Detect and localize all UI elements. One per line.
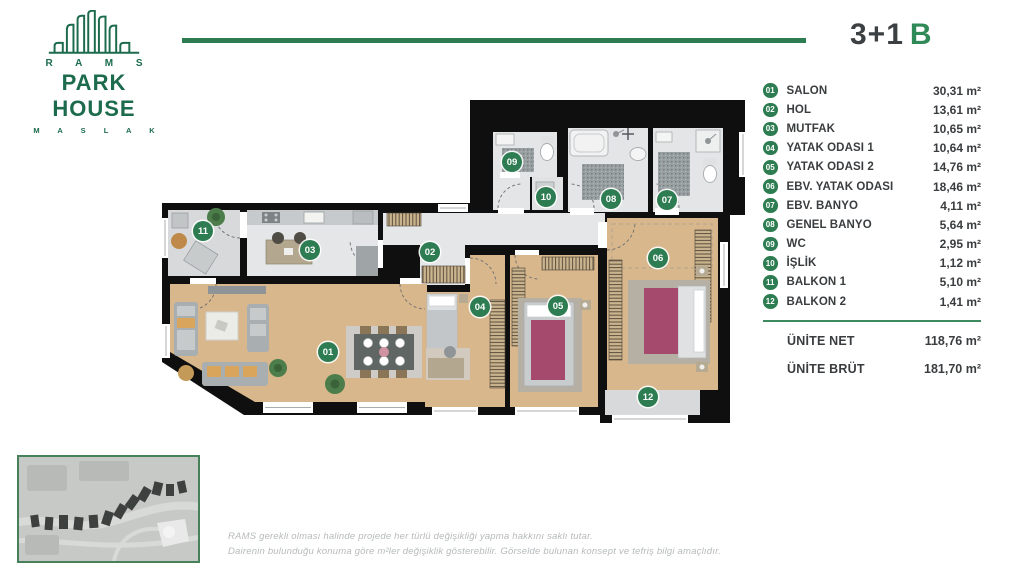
plan-badge-hol: 02 bbox=[420, 242, 440, 262]
dining-chair bbox=[360, 370, 371, 378]
room-area: 18,46 m² bbox=[933, 180, 981, 194]
room-label: MUTFAK bbox=[787, 123, 924, 135]
kitchen-sink bbox=[304, 212, 324, 223]
logo-brand-text: R A M S bbox=[18, 58, 170, 69]
balcony-table bbox=[171, 233, 187, 249]
room-number-badge: 10 bbox=[763, 256, 778, 271]
bed-blanket bbox=[644, 288, 678, 354]
tv-console bbox=[208, 286, 266, 294]
wc-sink bbox=[496, 134, 514, 145]
disclaimer-line2: Dairenin bulunduğu konuma göre m²ler değ… bbox=[228, 544, 721, 559]
toilet bbox=[704, 166, 717, 183]
bed-blanket bbox=[531, 320, 565, 380]
room-label: BALKON 2 bbox=[787, 296, 931, 308]
site-map bbox=[17, 455, 200, 563]
total-net-area: 118,76 m² bbox=[925, 334, 981, 348]
room-area: 30,31 m² bbox=[933, 84, 981, 98]
room-number-badge: 11 bbox=[763, 275, 778, 290]
kitchen-cabinet bbox=[356, 246, 378, 276]
room-label: GENEL BANYO bbox=[787, 219, 931, 231]
master-bedroom-furniture bbox=[628, 266, 710, 372]
room-label: WC bbox=[787, 238, 931, 250]
room-label: İŞLİK bbox=[787, 257, 931, 269]
room-area: 1,12 m² bbox=[940, 256, 981, 270]
room-area: 5,64 m² bbox=[940, 218, 981, 232]
kitchen-chair bbox=[272, 232, 284, 244]
room-legend: 01SALON30,31 m² 02HOL13,61 m² 03MUTFAK10… bbox=[763, 81, 981, 383]
total-gross-row: ÜNİTE BRÜT181,70 m² bbox=[763, 355, 981, 383]
site-map-image bbox=[19, 457, 198, 561]
plan-badge-yatak2: 05 bbox=[548, 296, 568, 316]
logo-location-text: M A S L A K bbox=[18, 126, 170, 135]
room-number-badge: 07 bbox=[763, 198, 778, 213]
desk bbox=[428, 358, 464, 378]
room-area: 14,76 m² bbox=[933, 160, 981, 174]
total-gross-label: ÜNİTE BRÜT bbox=[787, 362, 924, 376]
fridge bbox=[353, 211, 373, 224]
dining-chair bbox=[396, 370, 407, 378]
plan-badge-ebv-banyo: 07 bbox=[657, 190, 677, 210]
nightstand bbox=[459, 294, 468, 303]
room-number-badge: 06 bbox=[763, 179, 778, 194]
legend-row: 09WC2,95 m² bbox=[763, 235, 981, 254]
bathroom-rug bbox=[658, 152, 690, 196]
side-table bbox=[178, 365, 194, 381]
room-number-badge: 01 bbox=[763, 83, 778, 98]
plan-badge-balkon1: 11 bbox=[193, 221, 213, 241]
brochure-page: R A M S PARK HOUSE M A S L A K 3+1B 01SA… bbox=[0, 0, 1024, 576]
plan-badge-salon: 01 bbox=[318, 342, 338, 362]
plan-title-variant: B bbox=[910, 18, 933, 51]
dining-chair bbox=[378, 370, 389, 378]
legend-row: 01SALON30,31 m² bbox=[763, 81, 981, 100]
dining-chair bbox=[378, 326, 389, 334]
room-label: SALON bbox=[787, 85, 924, 97]
plan-badge-mutfak: 03 bbox=[300, 240, 320, 260]
total-gross-area: 181,70 m² bbox=[924, 362, 981, 376]
legend-row: 03MUTFAK10,65 m² bbox=[763, 119, 981, 138]
legend-row: 12BALKON 21,41 m² bbox=[763, 292, 981, 311]
room-number-badge: 08 bbox=[763, 218, 778, 233]
toilet bbox=[541, 144, 554, 161]
room-area: 10,64 m² bbox=[933, 141, 981, 155]
room-label: EBV. BANYO bbox=[787, 200, 932, 212]
legend-row: 11BALKON 15,10 m² bbox=[763, 273, 981, 292]
plan-title-type: 3+1 bbox=[850, 18, 904, 51]
room-area: 4,11 m² bbox=[940, 199, 981, 213]
plan-badge-genel-banyo: 08 bbox=[601, 189, 621, 209]
plan-badge-wc: 09 bbox=[502, 152, 522, 172]
room-area: 5,10 m² bbox=[940, 275, 981, 289]
room-number-badge: 02 bbox=[763, 103, 778, 118]
legend-row: 10İŞLİK1,12 m² bbox=[763, 254, 981, 273]
floor-plan: 01 02 03 04 05 06 07 08 09 10 11 12 bbox=[150, 100, 745, 432]
bathroom-sink bbox=[656, 132, 672, 142]
legend-row: 06EBV. YATAK ODASI18,46 m² bbox=[763, 177, 981, 196]
legend-row: 05YATAK ODASI 214,76 m² bbox=[763, 158, 981, 177]
disclaimer-line1: RAMS gerekli olması halinde projede her … bbox=[228, 529, 721, 544]
legend-row: 02HOL13,61 m² bbox=[763, 100, 981, 119]
room-label: YATAK ODASI 1 bbox=[787, 142, 924, 154]
legend-row: 04YATAK ODASI 110,64 m² bbox=[763, 139, 981, 158]
legend-row: 07EBV. BANYO4,11 m² bbox=[763, 196, 981, 215]
room-label: HOL bbox=[787, 104, 924, 116]
wc-lobby bbox=[493, 177, 530, 210]
skyline-logo-icon bbox=[35, 10, 153, 56]
balcony-chair bbox=[172, 213, 188, 228]
legend-divider bbox=[763, 320, 981, 322]
plan-badge-islik: 10 bbox=[536, 187, 556, 207]
plan-badge-yatak1: 04 bbox=[470, 297, 490, 317]
room-number-badge: 04 bbox=[763, 141, 778, 156]
room-number-badge: 03 bbox=[763, 122, 778, 137]
plan-title: 3+1B bbox=[850, 18, 933, 52]
legend-row: 08GENEL BANYO5,64 m² bbox=[763, 215, 981, 234]
header-divider-bar bbox=[182, 38, 806, 43]
room-label: EBV. YATAK ODASI bbox=[787, 181, 924, 193]
plan-badge-ebv-yatak: 06 bbox=[648, 248, 668, 268]
desk-chair bbox=[444, 346, 456, 358]
total-net-label: ÜNİTE NET bbox=[787, 334, 925, 348]
room-area: 10,65 m² bbox=[933, 122, 981, 136]
room-number-badge: 05 bbox=[763, 160, 778, 175]
dining-chair bbox=[396, 326, 407, 334]
room-area: 13,61 m² bbox=[933, 103, 981, 117]
dining-chair bbox=[360, 326, 371, 334]
plan-badge-balkon2: 12 bbox=[638, 387, 658, 407]
rams-park-house-logo: R A M S PARK HOUSE M A S L A K bbox=[18, 10, 170, 135]
room-label: BALKON 1 bbox=[787, 276, 931, 288]
room-area: 2,95 m² bbox=[940, 237, 981, 251]
room-number-badge: 12 bbox=[763, 294, 778, 309]
logo-name-text: PARK HOUSE bbox=[18, 70, 170, 122]
cooktop bbox=[262, 212, 280, 223]
disclaimer-text: RAMS gerekli olması halinde projede her … bbox=[228, 529, 721, 559]
total-net-row: ÜNİTE NET118,76 m² bbox=[763, 327, 981, 355]
bathroom-sink bbox=[630, 148, 646, 161]
room-number-badge: 09 bbox=[763, 237, 778, 252]
room-area: 1,41 m² bbox=[940, 295, 981, 309]
room-label: YATAK ODASI 2 bbox=[787, 161, 924, 173]
